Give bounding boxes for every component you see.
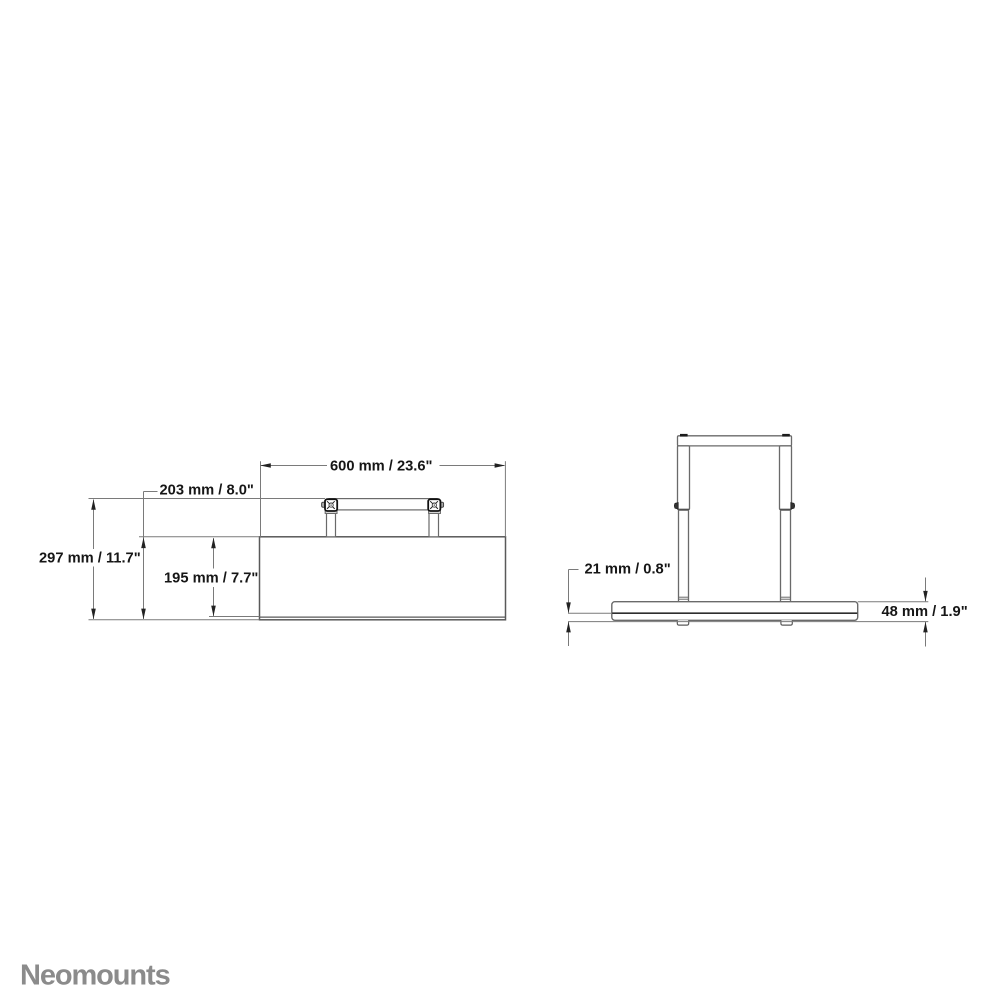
svg-text:48 mm / 1.9": 48 mm / 1.9" [882,604,968,620]
svg-text:Neomounts: Neomounts [20,960,170,992]
svg-text:297 mm / 11.7": 297 mm / 11.7" [39,551,141,567]
svg-text:203 mm / 8.0": 203 mm / 8.0" [160,482,254,498]
svg-text:195 mm / 7.7": 195 mm / 7.7" [164,570,258,586]
svg-text:21 mm / 0.8": 21 mm / 0.8" [585,562,671,578]
svg-text:600 mm / 23.6": 600 mm / 23.6" [330,458,433,474]
